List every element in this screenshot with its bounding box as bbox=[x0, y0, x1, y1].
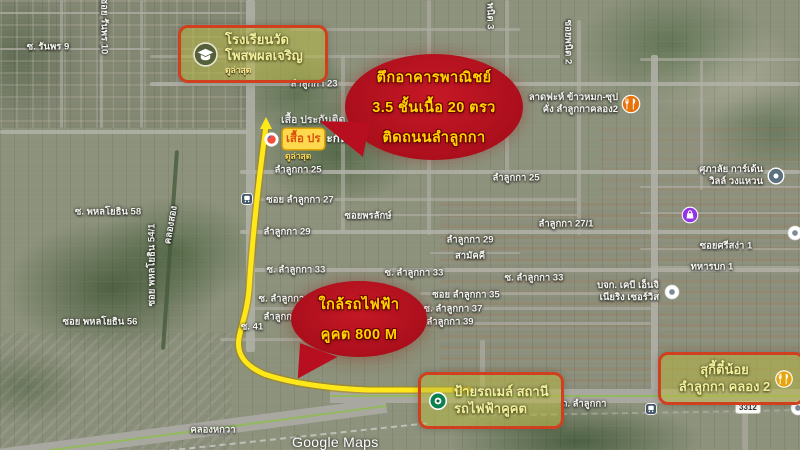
annotation-bubbles: ตึกอาคารพาณิชย์3.5 ชั้นเนื้อ 20 ตรวติดถน… bbox=[0, 0, 800, 450]
bubble-commercial-building: ตึกอาคารพาณิชย์3.5 ชั้นเนื้อ 20 ตรวติดถน… bbox=[345, 54, 523, 160]
bubble-tail bbox=[314, 112, 370, 157]
bubble-text-line: ติดถนนลำลูกกา bbox=[382, 126, 485, 149]
bubble-near-bts: ใกล้รถไฟฟ้าคูคต 800 M bbox=[291, 281, 427, 357]
bubble-tail bbox=[288, 343, 337, 389]
bubble-text-line: ใกล้รถไฟฟ้า bbox=[319, 293, 400, 316]
map-canvas[interactable]: ซ. รันพร 9ซอย รันพร 10พนิต 3ซอยพนิต 2ซ. … bbox=[0, 0, 800, 450]
google-maps-watermark: Google Maps bbox=[292, 434, 379, 450]
bubble-text-line: 3.5 ชั้นเนื้อ 20 ตรว bbox=[372, 96, 495, 119]
bubble-text-line: ตึกอาคารพาณิชย์ bbox=[377, 66, 492, 89]
bubble-text-line: คูคต 800 M bbox=[321, 323, 398, 346]
